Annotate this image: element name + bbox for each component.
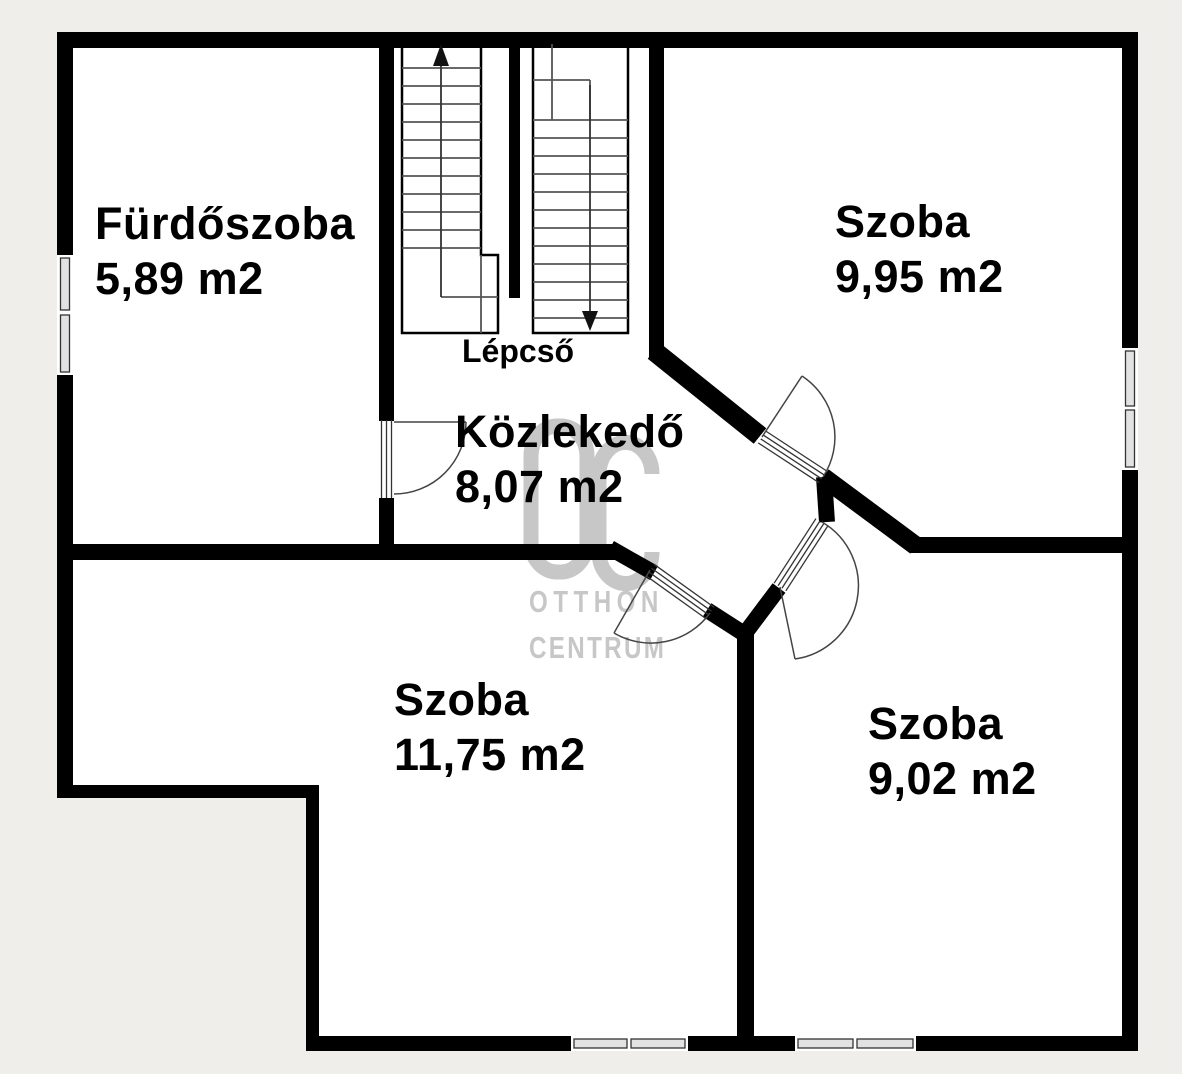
- door-room-ne: [758, 376, 835, 483]
- wall-diagonal-stair-to-ne-door: [654, 351, 760, 436]
- windows: [57, 255, 1138, 1051]
- wall-diagonal-hall-to-sw-door: [610, 548, 654, 573]
- window-bottom-right: [795, 1036, 916, 1051]
- door-bathroom-arc: [394, 422, 466, 494]
- wall-diagonal-ne-door-to-split: [823, 477, 916, 546]
- door-room-ne-arc: [802, 376, 835, 477]
- wall-diagonal-se-door-to-junction: [746, 588, 779, 632]
- stairs-left-flight-steps: [402, 68, 498, 333]
- door-room-sw-leaf: [614, 570, 650, 633]
- wall-rooms-sw-se-split: [737, 624, 754, 1051]
- wall-top: [57, 32, 1138, 48]
- stairs-left-flight-outline: [402, 44, 498, 333]
- wall-bottom-seg3: [916, 1036, 1138, 1051]
- floor-plan: OTTHON CENTRUM: [0, 0, 1182, 1074]
- door-room-sw: [614, 564, 714, 643]
- wall-right-upper: [1122, 32, 1138, 348]
- wall-bathroom-stair-upper: [379, 32, 394, 422]
- stairs-down-arrow-icon: [582, 311, 598, 331]
- window-right: [1122, 348, 1138, 470]
- door-room-se-leaf: [780, 587, 795, 659]
- wall-bottom-seg1: [306, 1036, 571, 1051]
- wall-right-lower: [1122, 470, 1138, 1051]
- wall-left-mid: [57, 375, 73, 798]
- wall-left-upper: [57, 32, 73, 255]
- stairs-right-flight-outline: [533, 44, 628, 333]
- wall-stub-between-doors: [824, 477, 827, 522]
- door-room-se-arc: [795, 522, 858, 659]
- door-room-sw-arc: [614, 613, 710, 643]
- wall-rooms-ne-se-split: [910, 537, 1138, 553]
- window-left: [57, 255, 73, 375]
- walls: [57, 32, 1138, 1051]
- wall-notch-vertical: [306, 785, 319, 1051]
- door-room-ne-leaf: [762, 376, 802, 437]
- wall-notch-horizontal: [57, 785, 319, 798]
- door-room-se: [774, 519, 858, 659]
- stairs-right-flight-steps: [533, 44, 628, 318]
- wall-stair-divider: [509, 32, 520, 298]
- walls-layer: [0, 0, 1182, 1074]
- window-bottom-left: [571, 1036, 688, 1051]
- doors: [379, 376, 858, 659]
- door-bathroom: [379, 420, 466, 498]
- wall-stair-right: [649, 32, 664, 358]
- wall-hall-bottom: [57, 544, 615, 560]
